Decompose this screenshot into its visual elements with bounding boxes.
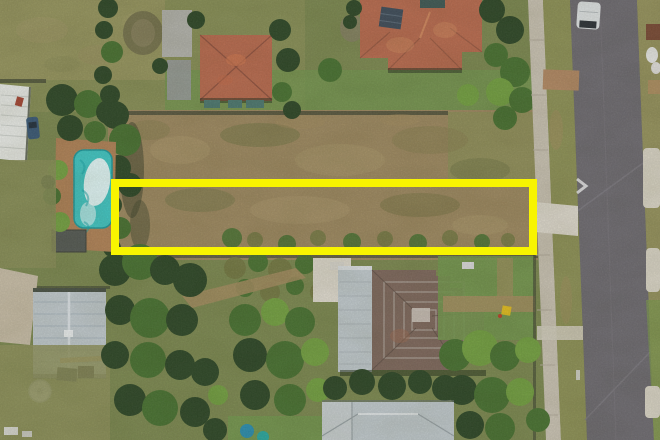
film-grain (0, 0, 660, 440)
aerial-photo (0, 0, 660, 440)
